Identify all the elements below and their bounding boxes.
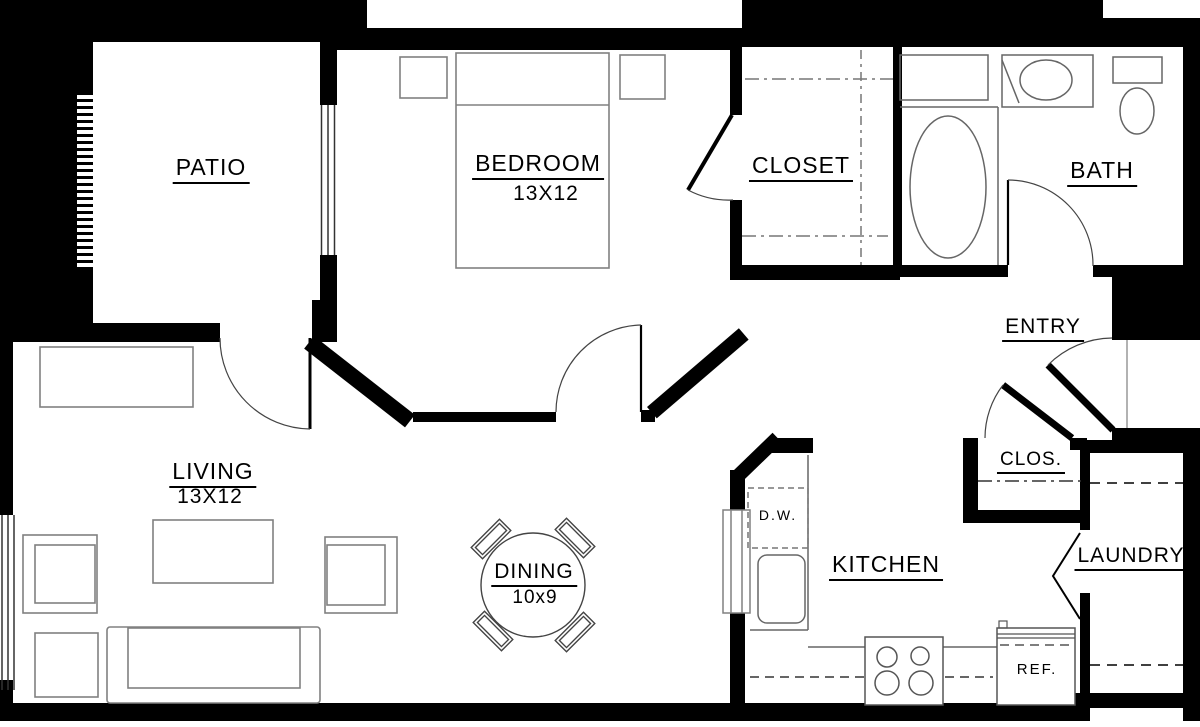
wall-diagonal-bedroom-entry xyxy=(647,328,749,418)
nightstand-right xyxy=(620,55,665,99)
vanity-sink xyxy=(1002,55,1093,107)
refrigerator-label: REF. xyxy=(1017,662,1058,678)
wall-closet-tub xyxy=(893,47,902,265)
wall-kitchen-left-lower xyxy=(730,613,745,705)
entry-label: ENTRY xyxy=(1002,316,1084,338)
bath-door xyxy=(1008,180,1093,266)
wall-clos-top-jamb xyxy=(1070,438,1087,450)
coffee-table xyxy=(153,520,273,583)
wall-closet-bottom xyxy=(730,265,900,280)
patio-label: PATIO xyxy=(173,155,250,179)
bath-label: BATH xyxy=(1067,158,1137,182)
closet-label: CLOSET xyxy=(749,153,853,177)
wall-patio-corner-block xyxy=(312,300,337,342)
wall-entry-below-door xyxy=(1112,428,1200,453)
dining-label: DINING xyxy=(491,561,577,583)
wall-top-mid-band xyxy=(742,0,1103,47)
wall-closet-left-upper xyxy=(730,47,742,115)
wall-closet-left-lower xyxy=(730,200,742,265)
wall-laundry-bottom xyxy=(1075,693,1200,708)
wall-bath-bottom-right xyxy=(1093,265,1112,277)
patio-bedroom-window xyxy=(322,105,335,255)
wall-top-left-band xyxy=(0,0,367,42)
side-table xyxy=(35,633,98,697)
toilet xyxy=(1113,57,1162,134)
entry-door xyxy=(1048,338,1127,430)
wall-living-top xyxy=(13,327,220,342)
wall-bottom xyxy=(0,703,1090,721)
dining-dims: 10x9 xyxy=(512,588,557,608)
laundry-label: LAUNDRY xyxy=(1075,545,1188,567)
sofa xyxy=(107,627,320,703)
plan-graphics xyxy=(0,0,1200,727)
stove xyxy=(865,637,943,705)
wall-bedroom-top xyxy=(330,28,742,50)
bedroom-label: BEDROOM xyxy=(472,151,604,175)
armchair-right xyxy=(325,537,397,613)
wall-bottom-right-stub xyxy=(1183,693,1200,721)
floor-plan: PATIO BEDROOM 13X12 CLOSET BATH ENTRY CL… xyxy=(0,0,1200,727)
dishwasher-label: D.W. xyxy=(759,508,797,523)
wall-living-left-upper xyxy=(0,327,13,515)
kitchen-label: KITCHEN xyxy=(829,552,943,576)
bedroom-door xyxy=(556,325,641,412)
tub-shelf xyxy=(900,55,988,100)
wall-laundry-right xyxy=(1183,453,1200,693)
wall-laundry-left-upper xyxy=(1080,453,1090,530)
nightstand-left xyxy=(400,57,447,98)
wall-bath-bottom-left xyxy=(893,265,1008,277)
wall-diagonal-living-bedroom xyxy=(304,336,415,427)
living-dims: 13X12 xyxy=(177,486,243,508)
kitchen-sink xyxy=(758,555,805,623)
living-label: LIVING xyxy=(169,459,256,483)
living-window xyxy=(2,515,14,690)
kitchen-pass-window xyxy=(723,510,750,613)
patio-door xyxy=(220,338,310,429)
wall-patio-right-upper xyxy=(320,42,337,105)
wall-bedroom-bottom xyxy=(413,412,556,422)
clos-door xyxy=(985,385,1072,438)
wall-diagonal-kitchen xyxy=(733,433,782,481)
wall-laundry-left-lower xyxy=(1080,593,1090,693)
patio-screen-hatch xyxy=(77,95,93,267)
bedroom-dims: 13X12 xyxy=(513,183,579,205)
wall-clos-bottom xyxy=(963,510,1087,523)
armchair-left xyxy=(23,535,97,613)
laundry-shelf-lines xyxy=(1090,483,1183,665)
media-console xyxy=(40,347,193,407)
wall-entry-block xyxy=(1112,265,1200,340)
clos-label: CLOS. xyxy=(997,450,1065,470)
bathtub xyxy=(910,116,986,258)
bedroom-closet-door xyxy=(688,115,733,200)
